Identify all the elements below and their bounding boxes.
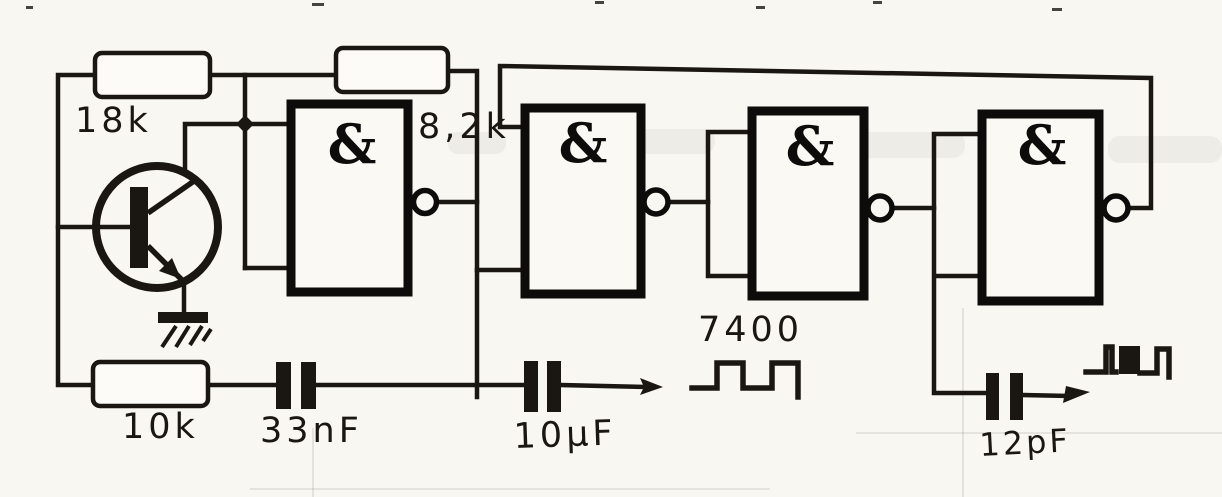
square-wave-icon (692, 363, 798, 397)
scan-speck (1052, 8, 1062, 11)
scan-speck (595, 1, 604, 4)
label-resistor-18k: 18k (75, 101, 152, 141)
label-capacitor-33nf: 33nF (260, 411, 363, 451)
resistor-10k (93, 362, 208, 406)
nand-gate-4: & (982, 113, 1128, 301)
scan-speck (312, 3, 324, 6)
resistor-8k2 (336, 48, 448, 92)
scan-speck (26, 6, 33, 9)
gate4-symbol: & (1018, 113, 1067, 177)
inverter-bubble-icon (414, 191, 437, 214)
gate1-symbol: & (328, 112, 377, 176)
ground-hatch (162, 326, 211, 347)
wire-output-2 (1023, 395, 1068, 396)
circuit-diagram: & & & & 18k 8,2k 10k 33nF 10µF 7400 12pF (0, 0, 1222, 497)
nand-gate-1: & (291, 104, 437, 292)
gate2-symbol: & (559, 111, 608, 175)
transistor-base-bar (130, 187, 148, 268)
output-arrow-2 (1063, 386, 1090, 403)
gate3-symbol: & (786, 114, 835, 178)
transistor-collector-lead (148, 179, 197, 213)
capacitor-plate (1010, 373, 1023, 420)
burst-wave-icon (1086, 346, 1169, 377)
capacitor-plate (524, 361, 538, 412)
label-capacitor-12pf: 12pF (978, 421, 1071, 464)
junction-dot (236, 115, 254, 133)
label-capacitor-10uf: 10µF (513, 413, 617, 457)
capacitor-10uf (524, 361, 561, 412)
capacitor-plate (301, 362, 316, 409)
label-resistor-8k2: 8,2k (418, 107, 510, 147)
burst-wave-block (1119, 346, 1140, 374)
wire-transistor-collector (185, 124, 245, 174)
capacitor-12pf (986, 373, 1023, 420)
inverter-bubble-icon (644, 190, 668, 214)
wire-output-1 (561, 385, 646, 387)
label-resistor-10k: 10k (122, 407, 199, 447)
burst-wave-left (1086, 347, 1116, 372)
scanned-schematic-page: & & & & 18k 8,2k 10k 33nF 10µF 7400 12pF (0, 0, 1222, 497)
ground-icon (158, 312, 211, 347)
ground-bar (158, 312, 208, 323)
capacitor-plate (276, 362, 291, 409)
burst-wave-right (1140, 349, 1169, 377)
capacitor-plate (547, 361, 561, 412)
inverter-bubble-icon (868, 196, 892, 220)
capacitor-plate (986, 373, 999, 420)
wire-gate3-input-tie (708, 132, 748, 276)
label-ic-7400: 7400 (698, 310, 803, 350)
inverter-bubble-icon (1104, 196, 1128, 220)
scan-speck (756, 6, 765, 9)
scan-smudge (1108, 136, 1222, 163)
resistor-18k (95, 53, 210, 97)
scan-speck (873, 1, 882, 4)
capacitor-33nf (276, 362, 316, 409)
